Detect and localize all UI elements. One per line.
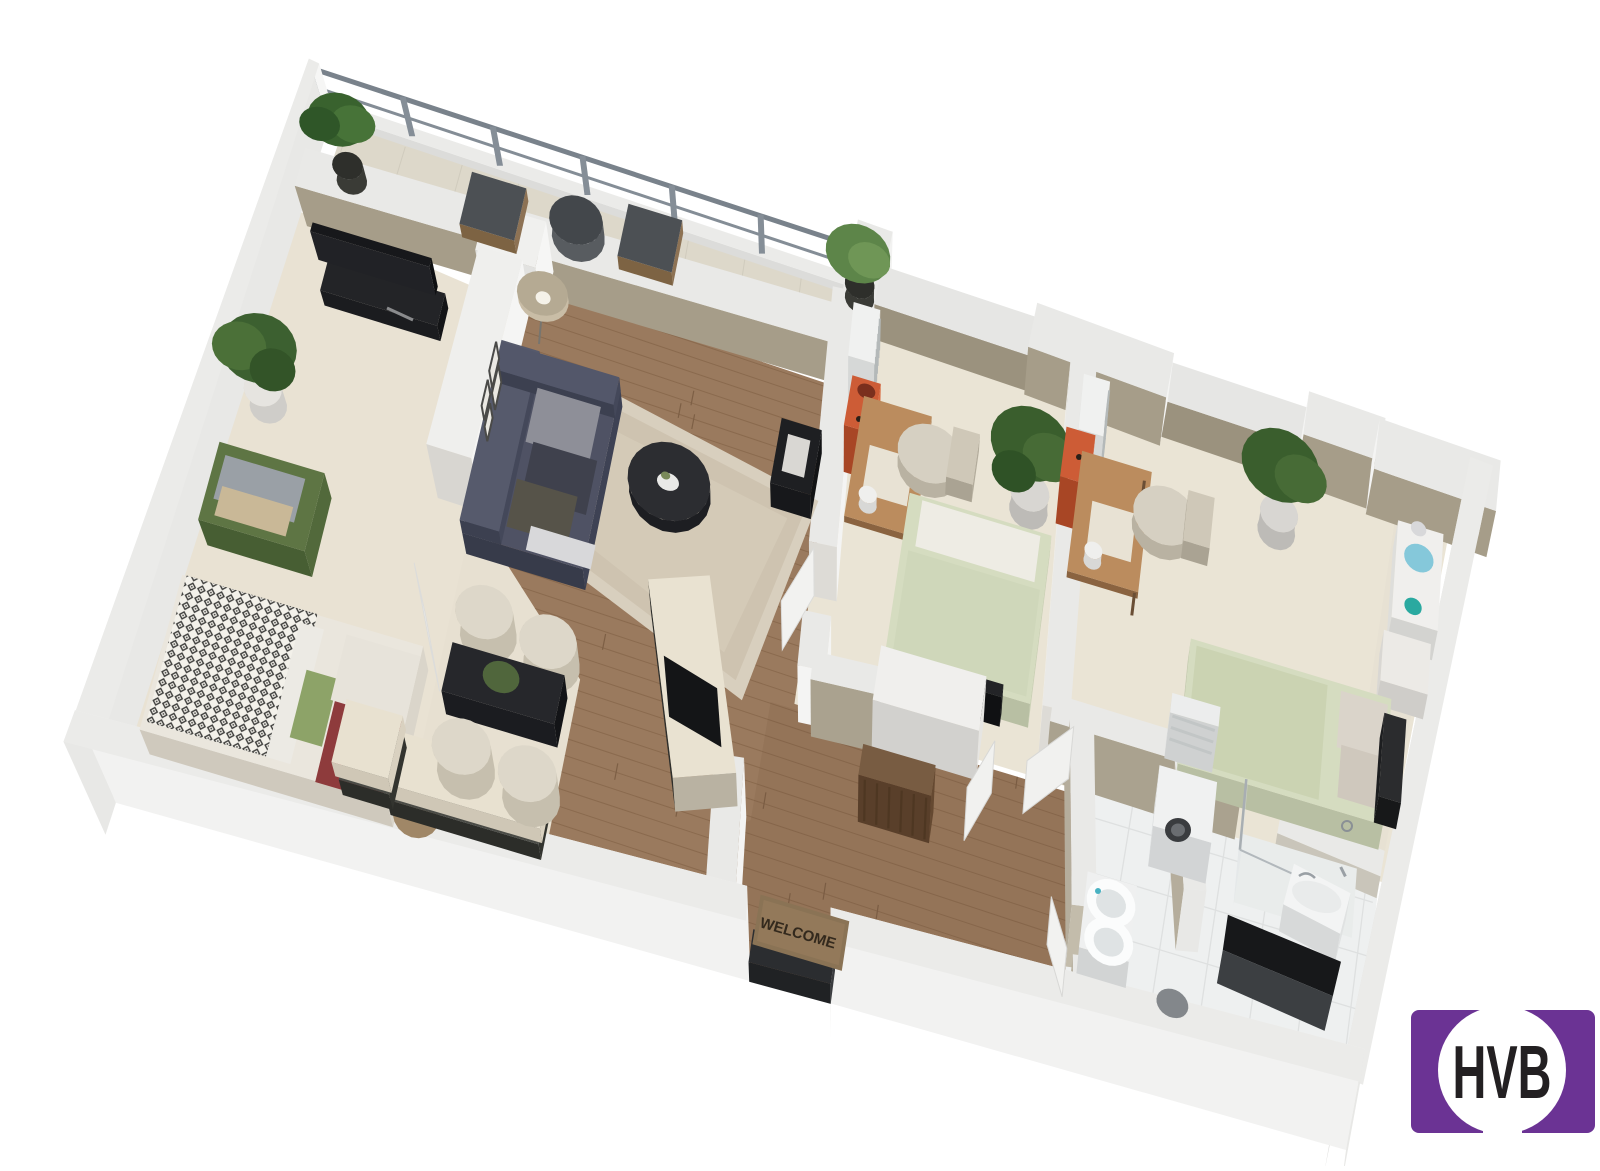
svg-text:HVB: HVB [1453,1030,1552,1114]
